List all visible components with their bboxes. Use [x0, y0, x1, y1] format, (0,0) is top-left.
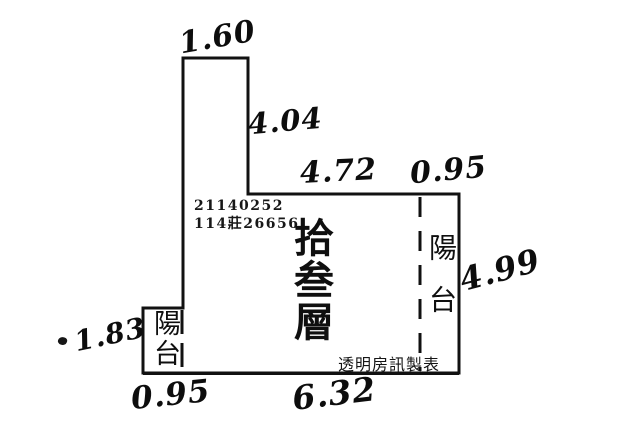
credit-label: 透明房訊製表: [338, 351, 440, 375]
registration-number: 21140252: [194, 198, 284, 214]
balcony-label-right: 陽台: [424, 233, 458, 337]
case-number: 114莊26656: [194, 213, 299, 233]
measurement-right-balcony-width: 0.95: [409, 150, 489, 192]
balcony-label-left: 陽台: [148, 309, 180, 369]
measurement-upper-right-height: 4.04: [247, 101, 324, 141]
floor-plan-page: 1.60 4.04 4.72 0.95 4.99 1.83 0.95 6.32 …: [0, 0, 640, 442]
measurement-main-top-width: 4.72: [299, 152, 378, 191]
floor-label: 拾叁層: [286, 217, 334, 343]
